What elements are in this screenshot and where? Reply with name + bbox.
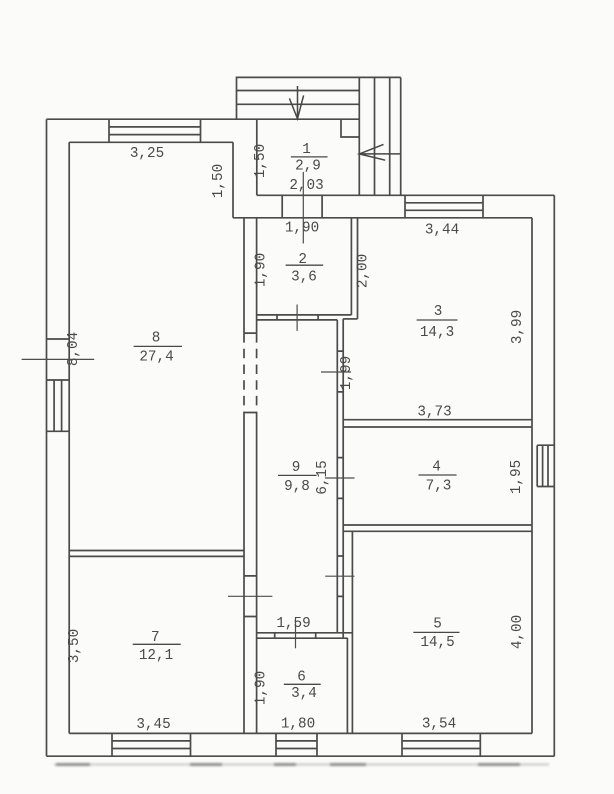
svg-text:1,90: 1,90 — [285, 221, 319, 237]
svg-text:1: 1 — [302, 142, 311, 158]
svg-text:3,73: 3,73 — [417, 405, 451, 421]
svg-text:1,80: 1,80 — [281, 717, 315, 733]
svg-text:1,50: 1,50 — [211, 164, 227, 198]
svg-text:2,03: 2,03 — [289, 178, 323, 194]
svg-text:6,15: 6,15 — [315, 460, 331, 494]
svg-text:1,99: 1,99 — [339, 356, 355, 390]
svg-text:7,3: 7,3 — [426, 479, 452, 495]
svg-text:3: 3 — [434, 304, 443, 320]
svg-text:9: 9 — [292, 460, 301, 476]
svg-text:2,9: 2,9 — [295, 159, 321, 175]
svg-text:1,90: 1,90 — [254, 671, 270, 705]
svg-text:1,95: 1,95 — [509, 460, 525, 494]
svg-text:27,4: 27,4 — [139, 350, 173, 366]
svg-text:3,25: 3,25 — [130, 146, 164, 162]
svg-text:14,3: 14,3 — [420, 325, 454, 341]
svg-text:3,4: 3,4 — [291, 686, 317, 702]
svg-text:3,54: 3,54 — [422, 717, 456, 733]
svg-text:3,99: 3,99 — [510, 310, 526, 344]
svg-text:2,00: 2,00 — [356, 254, 372, 288]
svg-text:1,59: 1,59 — [276, 616, 310, 632]
svg-text:4,00: 4,00 — [510, 615, 526, 649]
svg-text:3,6: 3,6 — [291, 270, 317, 286]
svg-text:4: 4 — [432, 460, 441, 476]
svg-text:1,90: 1,90 — [254, 253, 270, 287]
svg-text:6: 6 — [297, 670, 306, 686]
svg-text:8: 8 — [152, 331, 161, 347]
svg-text:12,1: 12,1 — [139, 648, 173, 664]
svg-text:3,44: 3,44 — [425, 223, 459, 239]
svg-text:7: 7 — [151, 630, 160, 646]
svg-text:5: 5 — [433, 617, 442, 633]
svg-text:3,50: 3,50 — [67, 629, 83, 663]
svg-text:1,50: 1,50 — [253, 144, 269, 178]
svg-text:9,8: 9,8 — [284, 479, 310, 495]
svg-text:8,04: 8,04 — [66, 332, 82, 366]
svg-text:3,45: 3,45 — [136, 717, 170, 733]
svg-text:14,5: 14,5 — [420, 635, 454, 651]
